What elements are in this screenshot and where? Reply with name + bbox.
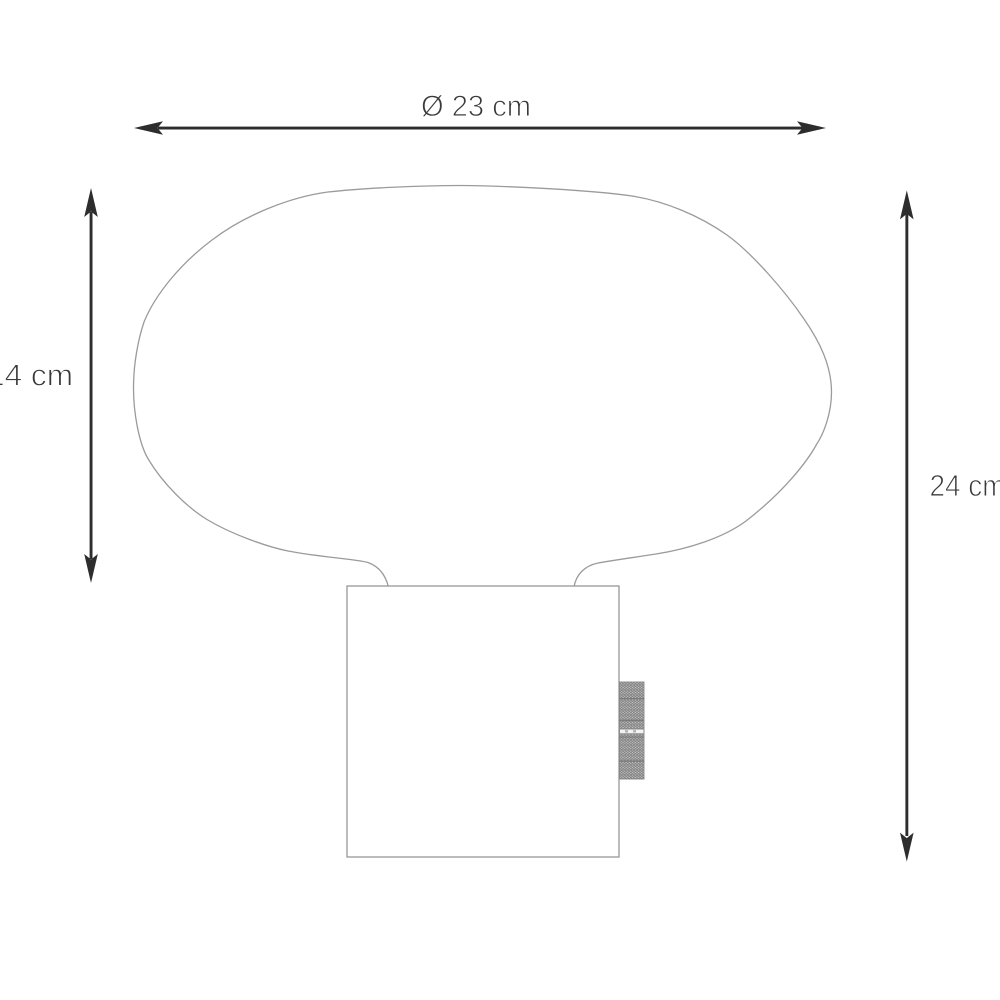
svg-text:24 cm: 24 cm — [930, 468, 1000, 503]
svg-text:14 cm: 14 cm — [0, 358, 73, 393]
svg-text:Ø 23 cm: Ø 23 cm — [421, 90, 531, 123]
